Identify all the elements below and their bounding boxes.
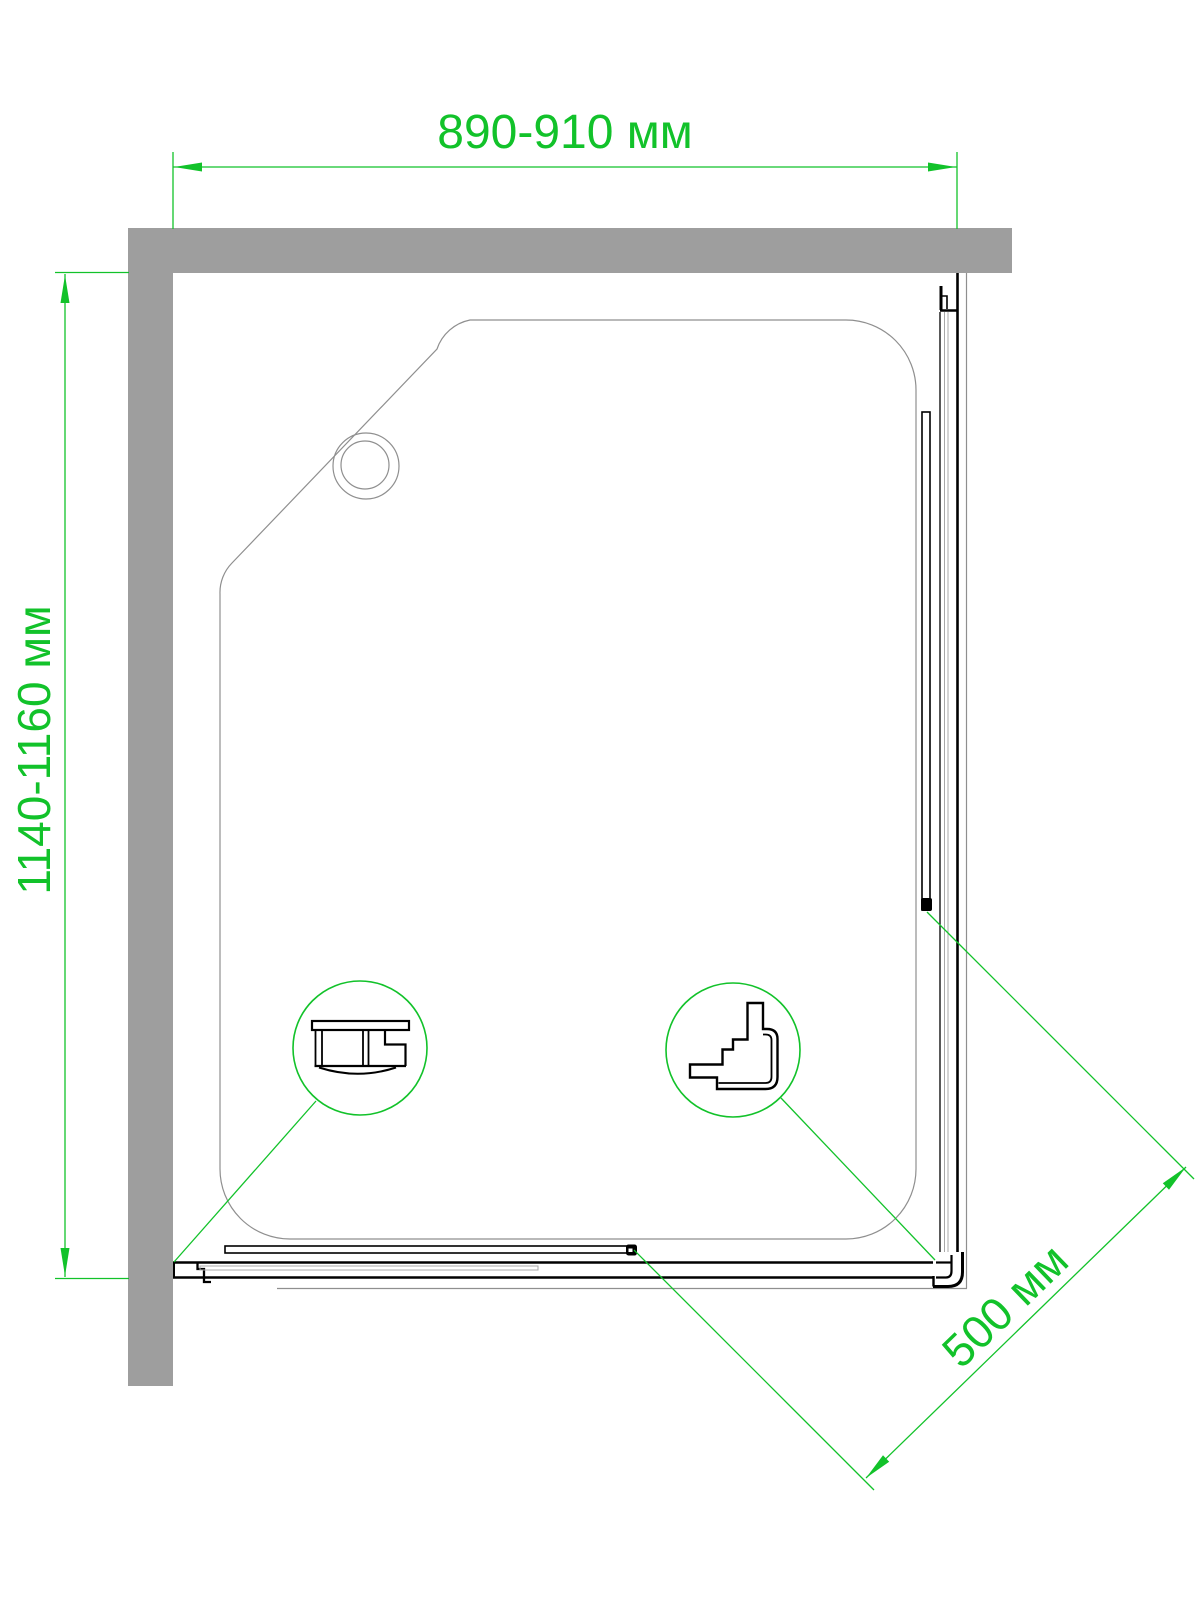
- dimension-width: 890-910 мм: [173, 106, 957, 229]
- depth-arrow-top: [61, 275, 70, 303]
- drain-inner-circle: [341, 441, 389, 489]
- opening-dim-line: [866, 1167, 1186, 1478]
- drawing-canvas: 890-910 мм 1140-1160 мм 500 мм: [0, 0, 1200, 1600]
- opening-arrow-upper: [1163, 1167, 1186, 1190]
- detail-callout-rail: [174, 981, 427, 1262]
- walls: [128, 228, 1012, 1386]
- bottom-door-end-cap-notch: [629, 1249, 633, 1253]
- corner-connector-profile: [933, 1252, 963, 1287]
- depth-dim-label: 1140-1160 мм: [8, 605, 60, 894]
- opening-ext-line-bottom: [634, 1250, 874, 1490]
- leader-line-corner: [781, 1098, 935, 1260]
- detail-circle-rail: [293, 981, 427, 1115]
- rail-inner-strip: [200, 1266, 538, 1270]
- right-door-end-cap: [921, 898, 932, 911]
- bottom-side-panel: [173, 1245, 963, 1288]
- shower-enclosure-plan-drawing: 890-910 мм 1140-1160 мм 500 мм: [0, 0, 1200, 1600]
- shower-tray: [220, 273, 967, 1289]
- dimension-depth: 1140-1160 мм: [8, 273, 129, 1279]
- width-arrow-left: [174, 163, 202, 172]
- opening-arrow-lower: [866, 1455, 889, 1478]
- depth-arrow-bottom: [61, 1248, 70, 1276]
- bottom-sliding-door-glass: [225, 1246, 633, 1253]
- top-wall: [128, 228, 1012, 273]
- width-dim-label: 890-910 мм: [437, 106, 693, 159]
- detail-callout-corner: [666, 983, 935, 1260]
- left-wall: [128, 228, 173, 1386]
- leader-line-rail: [174, 1101, 316, 1262]
- wall-mount-bracket: [940, 286, 957, 311]
- width-arrow-right: [928, 163, 956, 172]
- right-sliding-door-glass: [922, 412, 930, 910]
- right-side-panel: [921, 273, 958, 1258]
